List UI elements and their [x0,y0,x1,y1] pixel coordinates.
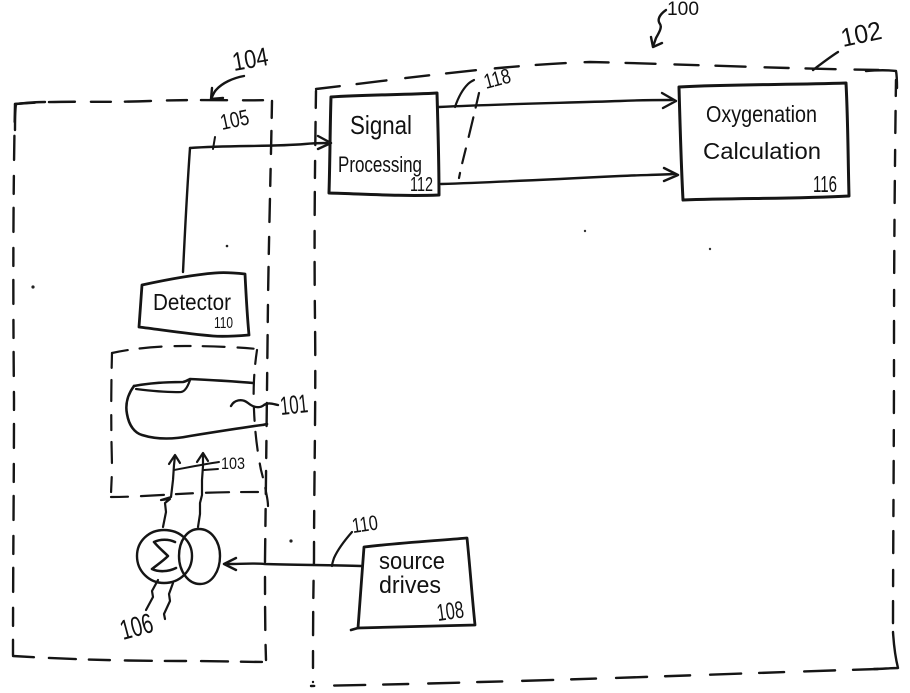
svg-text:Oxygenation: Oxygenation [706,101,817,127]
svg-text:Calculation: Calculation [703,138,821,164]
svg-text:Detector: Detector [153,289,231,315]
svg-text:drives: drives [379,572,441,599]
svg-text:112: 112 [410,174,433,196]
svg-text:100: 100 [667,0,699,20]
svg-text:101: 101 [278,388,309,421]
svg-text:Signal: Signal [350,110,412,140]
svg-text:110: 110 [350,512,379,538]
svg-text:source: source [379,548,445,575]
svg-text:110: 110 [214,315,233,332]
svg-text:108: 108 [435,596,465,626]
svg-text:103: 103 [221,454,245,473]
svg-text:104: 104 [230,41,271,77]
svg-text:116: 116 [813,171,837,197]
